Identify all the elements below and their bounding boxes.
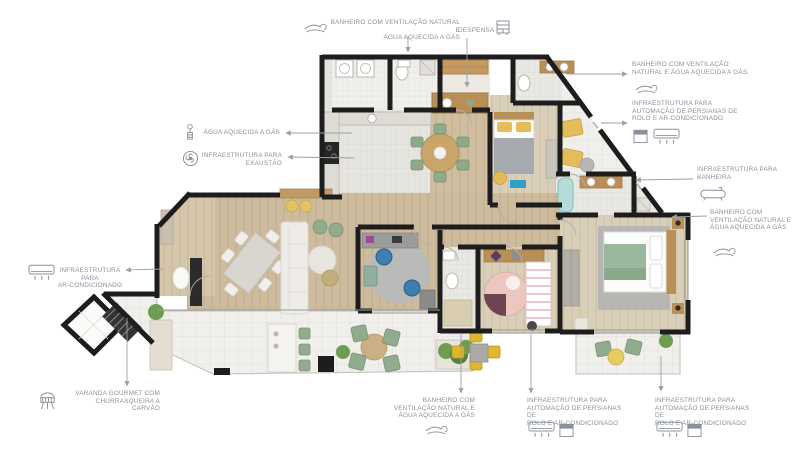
ac-unit-icon xyxy=(653,128,680,146)
grill-icon xyxy=(38,390,57,410)
wind-icon xyxy=(712,245,736,259)
ac-unit-icon xyxy=(656,421,683,439)
wind-icon xyxy=(303,21,327,35)
exhaust-fan-icon xyxy=(182,150,199,167)
label-ar-condicionado: INFRAESTRUTURA PARA AR-CONDICIONADO xyxy=(57,267,123,290)
label-despensa: DESPENSA xyxy=(458,27,494,35)
label-bathroom-right-top: BANHEIRO COM VENTILAÇÃO NATURAL E ÁGUA A… xyxy=(632,61,754,76)
wind-icon xyxy=(424,423,448,437)
ac-unit-icon xyxy=(28,264,55,282)
label-agua-aquecida: ÁGUA AQUECIDA A GÁS xyxy=(198,129,280,137)
label-persianas-right: INFRAESTRUTURA PARA AUTOMAÇÃO DE PERSIAN… xyxy=(632,100,754,123)
bathtub-icon xyxy=(699,186,727,202)
pantry-shelf-icon xyxy=(496,20,510,36)
ac-unit-icon xyxy=(528,421,555,439)
roller-blind-icon xyxy=(687,422,702,438)
wind-icon xyxy=(634,82,658,96)
label-bathroom-bottom: BANHEIRO COM VENTILAÇÃO NATURAL E ÁGUA A… xyxy=(385,397,475,420)
label-bathroom-right-mid: BANHEIRO COM VENTILAÇÃO NATURAL E ÁGUA A… xyxy=(710,209,796,232)
label-banheira: INFRAESTRUTURA PARA BANHEIRA xyxy=(697,166,789,181)
floor-plan-page: BANHEIRO COM VENTILAÇÃO NATURAL E ÁGUA A… xyxy=(0,0,800,450)
label-exaustao: INFRAESTRUTURA PARA EXAUSTÃO xyxy=(200,152,282,167)
label-varanda-gourmet: VARANDA GOURMET COM CHURRASQUEIRA A CARV… xyxy=(56,390,160,413)
roller-blind-icon xyxy=(559,422,574,438)
roller-blind-icon xyxy=(633,128,648,144)
gas-shower-icon xyxy=(184,124,196,141)
label-bathroom-top: BANHEIRO COM VENTILAÇÃO NATURAL E ÁGUA A… xyxy=(330,19,460,42)
